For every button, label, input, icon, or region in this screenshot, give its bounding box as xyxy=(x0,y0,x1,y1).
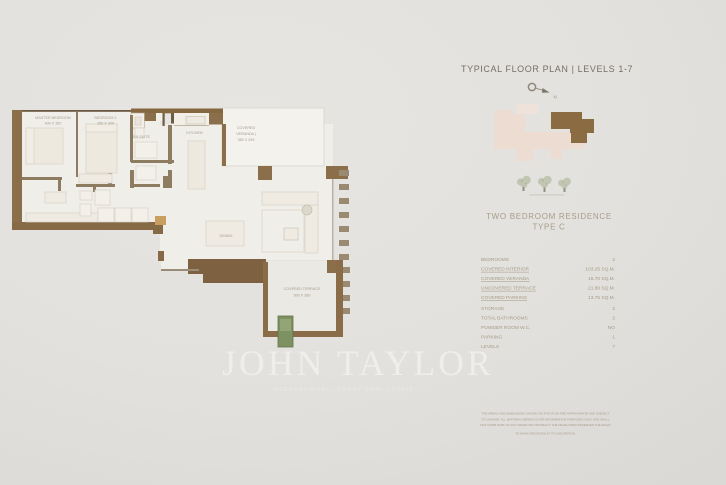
svg-text:COVERED INTERIOR: COVERED INTERIOR xyxy=(481,267,530,273)
svg-text:COVERED PARKING: COVERED PARKING xyxy=(481,295,528,301)
svg-text:COVERED TERRACE: COVERED TERRACE xyxy=(284,287,321,291)
svg-text:INTERNATIONAL LUXURY REAL ESTA: INTERNATIONAL LUXURY REAL ESTATE xyxy=(271,387,414,393)
svg-text:7: 7 xyxy=(612,344,615,350)
svg-text:380 X 299: 380 X 299 xyxy=(238,138,255,142)
svg-text:BEDROOM 2: BEDROOM 2 xyxy=(94,116,116,120)
svg-text:500 X 360: 500 X 360 xyxy=(294,294,311,298)
svg-text:2: 2 xyxy=(612,316,615,322)
svg-text:350 X 300: 350 X 300 xyxy=(97,122,114,126)
svg-text:JOHN TAYLOR: JOHN TAYLOR xyxy=(222,343,494,383)
svg-text:BEDROOMS: BEDROOMS xyxy=(481,257,509,263)
svg-text:MASTER BEDROOM: MASTER BEDROOM xyxy=(35,116,70,120)
svg-text:POWDER ROOM W.C.: POWDER ROOM W.C. xyxy=(481,325,531,331)
svg-text:13.75 SQ.M.: 13.75 SQ.M. xyxy=(588,295,615,301)
svg-text:DINING: DINING xyxy=(220,234,233,238)
svg-text:2: 2 xyxy=(612,306,615,312)
svg-text:EN SUITE: EN SUITE xyxy=(133,135,151,139)
svg-text:THE AREAS AND DIMENSIONS SHOWN: THE AREAS AND DIMENSIONS SHOWN ON THIS P… xyxy=(481,412,609,416)
svg-text:NOT FORM PART OF ANY OFFER OR: NOT FORM PART OF ANY OFFER OR CONTRACT. … xyxy=(480,423,611,427)
svg-text:TYPICAL FLOOR PLAN | LEVELS 1-: TYPICAL FLOOR PLAN | LEVELS 1-7 xyxy=(461,64,633,74)
svg-text:TWO BEDROOM RESIDENCE: TWO BEDROOM RESIDENCE xyxy=(486,212,612,221)
svg-text:N: N xyxy=(554,95,557,100)
svg-text:1: 1 xyxy=(612,335,615,341)
svg-text:VERANDA |: VERANDA | xyxy=(236,132,256,136)
svg-text:TOTAL BATHROOMS: TOTAL BATHROOMS xyxy=(481,316,528,322)
svg-text:21.80 SQ.M.: 21.80 SQ.M. xyxy=(588,286,615,292)
svg-text:PARKING: PARKING xyxy=(481,335,503,341)
svg-text:COVERED: COVERED xyxy=(237,126,256,130)
svg-text:400 X 350: 400 X 350 xyxy=(45,122,62,126)
svg-text:NO: NO xyxy=(608,325,615,331)
svg-text:TYPE C: TYPE C xyxy=(532,223,565,232)
svg-text:TO CHANGE. ALL MATERIAL HEREIN: TO CHANGE. ALL MATERIAL HEREIN IS FOR IN… xyxy=(481,418,610,422)
svg-text:15.70 SQ.M.: 15.70 SQ.M. xyxy=(588,276,615,282)
svg-text:UNCOVERED TERRACE: UNCOVERED TERRACE xyxy=(481,286,536,292)
svg-text:2: 2 xyxy=(612,257,615,263)
svg-text:TO MAKE REVISIONS AT ITS DISCR: TO MAKE REVISIONS AT ITS DISCRETION. xyxy=(515,432,576,436)
svg-text:STORAGE: STORAGE xyxy=(481,306,504,312)
svg-text:KITCHEN: KITCHEN xyxy=(186,131,203,135)
svg-text:103.25 SQ.M.: 103.25 SQ.M. xyxy=(585,267,615,273)
svg-text:COVERED VERANDA: COVERED VERANDA xyxy=(481,276,530,282)
